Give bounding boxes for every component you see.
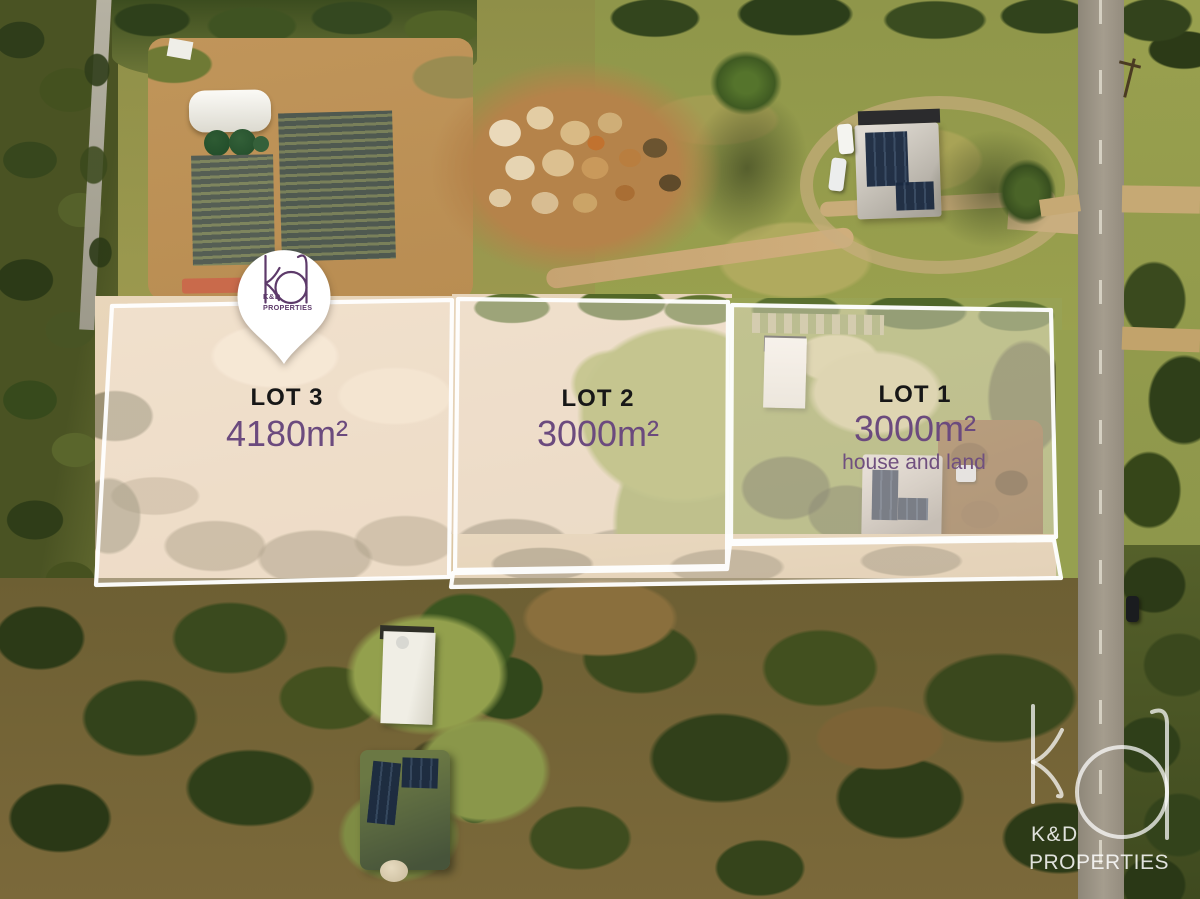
aerial-photo: LOT 3 4180m² LOT 2 3000m² LOT 1 3000m² h… (0, 0, 1200, 899)
lot3-area: 4180m² (226, 416, 348, 452)
lot1-note: house and land (842, 452, 986, 473)
pin-brand-name: K&D (263, 292, 281, 301)
lot3-label: LOT 3 (250, 386, 323, 410)
lot1-area: 3000m² (854, 411, 976, 447)
watermark-kd-monogram-icon (1033, 706, 1167, 838)
lot1-label: LOT 1 (878, 383, 951, 407)
pin-brand-subtitle: PROPERTIES (263, 303, 312, 312)
watermark-brand-name: K&D (1031, 823, 1079, 847)
watermark-brand-subtitle: PROPERTIES (1029, 851, 1169, 875)
lot2-label: LOT 2 (561, 387, 634, 411)
lot2-area: 3000m² (537, 416, 659, 452)
